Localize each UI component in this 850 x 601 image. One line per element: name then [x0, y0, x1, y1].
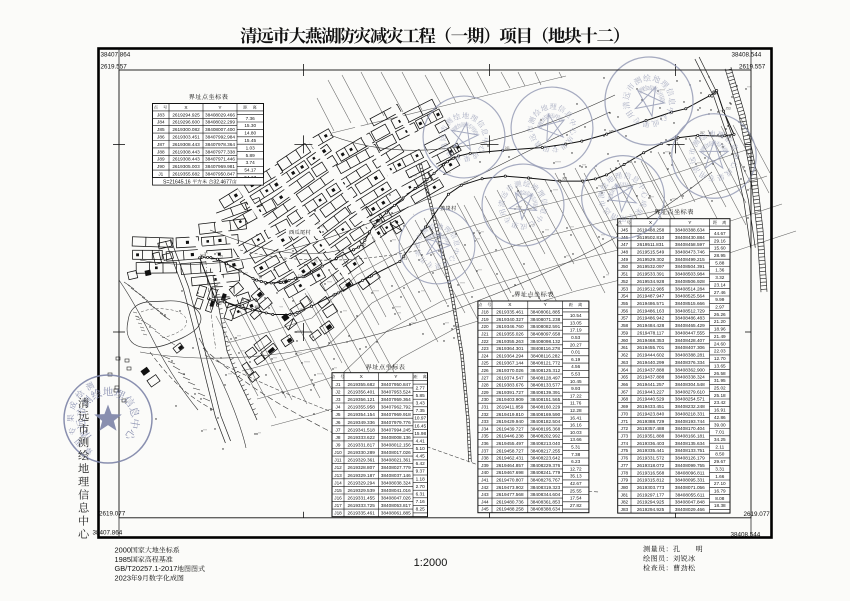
- svg-text:38408038.324: 38408038.324: [381, 480, 411, 485]
- svg-text:38408458.597: 38408458.597: [675, 242, 705, 247]
- svg-text:J78: J78: [621, 470, 629, 475]
- svg-text:1.18: 1.18: [416, 476, 426, 481]
- svg-text:54.17: 54.17: [244, 168, 256, 173]
- svg-text:9: 9: [138, 574, 142, 583]
- svg-text:J31: J31: [481, 405, 489, 410]
- svg-text:38408232.248: 38408232.248: [675, 404, 705, 409]
- svg-text:16.45: 16.45: [414, 423, 426, 428]
- svg-text:38408512.729: 38408512.729: [675, 308, 705, 313]
- svg-text:8.25: 8.25: [416, 507, 426, 512]
- svg-text:J60: J60: [621, 338, 629, 343]
- svg-text:2619303.451: 2619303.451: [172, 135, 200, 140]
- svg-text:24.60: 24.60: [714, 341, 726, 346]
- svg-text:27.82: 27.82: [570, 503, 582, 508]
- svg-text:2619316.568: 2619316.568: [637, 470, 665, 475]
- svg-text:2619467.698: 2619467.698: [496, 470, 524, 475]
- svg-text:J21: J21: [481, 332, 489, 337]
- svg-text:2619529.302: 2619529.302: [637, 257, 665, 262]
- svg-text:2619294.925: 2619294.925: [637, 507, 665, 512]
- svg-text:J17: J17: [334, 503, 342, 508]
- svg-text:J52: J52: [621, 279, 629, 284]
- svg-text:J87: J87: [157, 142, 165, 147]
- svg-text:38408182.504: 38408182.504: [530, 419, 560, 424]
- svg-text:38408515.666: 38408515.666: [675, 301, 705, 306]
- svg-text:J40: J40: [481, 470, 489, 475]
- svg-text:14.80: 14.80: [244, 131, 256, 136]
- svg-text:7.35: 7.35: [416, 408, 426, 413]
- svg-text:J25: J25: [481, 361, 489, 366]
- svg-text:J68: J68: [621, 397, 629, 402]
- svg-text:2619336.403: 2619336.403: [637, 441, 665, 446]
- svg-text:2619486.163: 2619486.163: [637, 308, 665, 313]
- svg-text:10.54: 10.54: [570, 313, 582, 318]
- svg-text:J80: J80: [621, 485, 629, 490]
- svg-text:J27: J27: [481, 375, 489, 380]
- svg-text:38408276.767: 38408276.767: [530, 478, 560, 483]
- svg-text:J23: J23: [481, 346, 489, 351]
- svg-text:31.95: 31.95: [714, 378, 726, 383]
- svg-text:J38: J38: [481, 456, 489, 461]
- svg-text:38407953.524: 38407953.524: [381, 389, 411, 394]
- svg-text:38408319.323: 38408319.323: [530, 485, 560, 490]
- svg-text:38408388.634: 38408388.634: [530, 507, 560, 512]
- svg-text:J67: J67: [621, 389, 629, 394]
- svg-text:2619478.117: 2619478.117: [637, 331, 664, 336]
- svg-text:2619315.812: 2619315.812: [637, 478, 665, 483]
- svg-text:2619470.807: 2619470.807: [496, 478, 524, 483]
- svg-text:J44: J44: [481, 499, 489, 504]
- svg-text:J9: J9: [336, 443, 341, 448]
- svg-text:25.02: 25.02: [714, 386, 726, 391]
- svg-text:39.00: 39.00: [714, 422, 726, 427]
- svg-text:J12: J12: [334, 465, 342, 470]
- svg-text:38407979.776: 38407979.776: [381, 420, 411, 425]
- svg-text:J29: J29: [481, 390, 489, 395]
- svg-text:J41: J41: [481, 478, 489, 483]
- svg-text:16.41: 16.41: [570, 415, 582, 420]
- svg-text:38408428.407: 38408428.407: [675, 338, 705, 343]
- svg-text:4.56: 4.56: [571, 364, 581, 369]
- svg-text:J1: J1: [158, 172, 163, 177]
- svg-text:2619437.888: 2619437.888: [637, 367, 665, 372]
- svg-text:2619364.301: 2619364.301: [496, 346, 524, 351]
- svg-text:J65: J65: [621, 375, 629, 380]
- svg-text:38407994.245: 38407994.245: [381, 427, 411, 432]
- svg-text:J72: J72: [621, 426, 629, 431]
- svg-text:8.08: 8.08: [715, 496, 725, 501]
- svg-text:38408361.853: 38408361.853: [530, 499, 560, 504]
- svg-text:J10: J10: [334, 450, 342, 455]
- svg-text:J25: J25: [361, 243, 366, 247]
- svg-text:J6: J6: [336, 420, 341, 425]
- svg-text:38408218.331: 38408218.331: [675, 411, 705, 416]
- svg-text:5.31: 5.31: [571, 445, 581, 450]
- svg-text:38408195.368: 38408195.368: [530, 426, 560, 431]
- svg-text:S=21645.16: S=21645.16: [163, 179, 191, 185]
- svg-text:38408061.885: 38408061.885: [530, 310, 560, 315]
- svg-text:2619354.154: 2619354.154: [348, 412, 376, 417]
- svg-text:2619488.258: 2619488.258: [496, 507, 524, 512]
- svg-text:J49: J49: [621, 257, 629, 262]
- svg-text:J35: J35: [481, 434, 489, 439]
- svg-text:2619335.461: 2619335.461: [496, 310, 524, 315]
- svg-text:42.67: 42.67: [570, 481, 582, 486]
- svg-text:2619443.227: 2619443.227: [637, 389, 665, 394]
- svg-text:6.31: 6.31: [416, 492, 426, 497]
- svg-text:2619403.909: 2619403.909: [496, 397, 524, 402]
- svg-text:J39: J39: [481, 463, 489, 468]
- svg-text:2619484.428: 2619484.428: [637, 323, 665, 328]
- svg-text:J62: J62: [621, 353, 629, 358]
- svg-text:9.37: 9.37: [416, 469, 426, 474]
- svg-text:J36: J36: [481, 441, 489, 446]
- svg-text:2619391.727: 2619391.727: [496, 390, 524, 395]
- svg-text:4.41: 4.41: [416, 438, 426, 443]
- svg-text:15.30: 15.30: [244, 123, 256, 128]
- svg-text:J83: J83: [621, 507, 629, 512]
- svg-text:6.23: 6.23: [571, 459, 581, 464]
- svg-text:2619370.026: 2619370.026: [496, 368, 524, 373]
- svg-text:3.74: 3.74: [246, 160, 256, 165]
- svg-text:2619355.682: 2619355.682: [172, 172, 200, 177]
- svg-text:J29: J29: [377, 220, 382, 224]
- svg-text:38408430.884: 38408430.884: [675, 235, 705, 240]
- svg-text:1.66: 1.66: [715, 474, 725, 479]
- svg-text:J15: J15: [334, 488, 342, 493]
- svg-text:38408037.146: 38408037.146: [381, 473, 411, 478]
- svg-text:2619341.518: 2619341.518: [348, 427, 376, 432]
- svg-text:38408135.634: 38408135.634: [675, 441, 705, 446]
- svg-text:2619303.773: 2619303.773: [637, 485, 665, 490]
- svg-text:J8: J8: [336, 435, 341, 440]
- svg-text:9.93: 9.93: [571, 386, 581, 391]
- svg-text:38408097.658: 38408097.658: [530, 332, 560, 337]
- svg-text:J73: J73: [402, 257, 407, 261]
- svg-text:2.70: 2.70: [416, 484, 426, 489]
- svg-text:38408.544: 38408.544: [732, 52, 762, 59]
- svg-text:11.76: 11.76: [570, 401, 582, 406]
- svg-text:10.45: 10.45: [570, 379, 582, 384]
- svg-text:2619349.336: 2619349.336: [348, 420, 376, 425]
- svg-text:J28: J28: [481, 383, 489, 388]
- svg-text:38407.864: 38407.864: [93, 530, 123, 537]
- svg-text:2619355.958: 2619355.958: [348, 405, 376, 410]
- svg-text:2619423.840: 2619423.840: [637, 411, 665, 416]
- svg-text:38408022.299: 38408022.299: [205, 120, 235, 125]
- svg-text:38408465.429: 38408465.429: [675, 323, 705, 328]
- svg-text:25.55: 25.55: [570, 488, 582, 493]
- svg-text:2619437.888: 2619437.888: [637, 375, 665, 380]
- svg-text:GB/T20257.1-2017: GB/T20257.1-2017: [115, 564, 178, 573]
- svg-text:13.66: 13.66: [570, 437, 582, 442]
- svg-text:0.01: 0.01: [571, 350, 581, 355]
- svg-text:12.72: 12.72: [570, 466, 582, 471]
- svg-text:38408047.026: 38408047.026: [381, 496, 411, 501]
- svg-text:J37: J37: [481, 448, 489, 453]
- svg-text:38408388.634: 38408388.634: [675, 227, 705, 232]
- svg-text:1:2000: 1:2000: [414, 557, 448, 569]
- svg-text:34.25: 34.25: [714, 437, 726, 442]
- svg-text:2619364.294: 2619364.294: [496, 353, 524, 358]
- svg-text:38408029.466: 38408029.466: [205, 112, 235, 117]
- svg-text:J16: J16: [334, 496, 342, 501]
- svg-text:15.60: 15.60: [714, 246, 726, 251]
- svg-text:2619455.701: 2619455.701: [637, 345, 665, 350]
- svg-text:2619308.443: 2619308.443: [172, 157, 200, 162]
- svg-text:38408061.885: 38408061.885: [381, 511, 411, 516]
- svg-text:18.96: 18.96: [714, 327, 726, 332]
- svg-text:38407969.981: 38407969.981: [205, 164, 235, 169]
- svg-text:J79: J79: [621, 478, 629, 483]
- svg-text:2619388.729: 2619388.729: [637, 419, 665, 424]
- svg-text:6.19: 6.19: [571, 357, 581, 362]
- svg-text:38408338.324: 38408338.324: [675, 375, 705, 380]
- svg-text:J77: J77: [340, 288, 345, 292]
- svg-text:2619357.488: 2619357.488: [637, 426, 665, 431]
- svg-text:2619355.026: 2619355.026: [496, 332, 524, 337]
- svg-text:2619308.443: 2619308.443: [172, 142, 200, 147]
- svg-text:J69: J69: [463, 181, 468, 185]
- svg-text:38407992.984: 38407992.984: [205, 135, 235, 140]
- svg-text:J42: J42: [481, 485, 489, 490]
- svg-text:J84: J84: [157, 120, 165, 125]
- svg-text:J13: J13: [334, 473, 342, 478]
- svg-text:38408506.928: 38408506.928: [675, 279, 705, 284]
- svg-text:2619480.736: 2619480.736: [496, 499, 524, 504]
- svg-text:J21: J21: [338, 254, 343, 258]
- svg-text:J3: J3: [336, 397, 341, 402]
- svg-text:J1: J1: [202, 253, 206, 257]
- svg-text:J70: J70: [621, 411, 629, 416]
- svg-text:38408055.611: 38408055.611: [675, 492, 705, 497]
- svg-text:2000: 2000: [115, 546, 131, 555]
- svg-text:4.45: 4.45: [416, 454, 426, 459]
- svg-text:18.38: 18.38: [714, 503, 726, 508]
- svg-text:2619473.902: 2619473.902: [496, 485, 524, 490]
- svg-text:38408217.255: 38408217.255: [530, 448, 560, 453]
- svg-text:2619511.831: 2619511.831: [637, 242, 664, 247]
- svg-text:2619446.238: 2619446.238: [496, 434, 524, 439]
- svg-text:J34: J34: [481, 426, 489, 431]
- svg-text:38408096.811: 38408096.811: [675, 470, 705, 475]
- svg-text:38408166.181: 38408166.181: [675, 434, 705, 439]
- svg-text:2619512.985: 2619512.985: [637, 286, 665, 291]
- svg-text:26.58: 26.58: [714, 371, 726, 376]
- svg-text:J54: J54: [621, 294, 629, 299]
- svg-text:J69: J69: [621, 404, 629, 409]
- svg-text:2619356.121: 2619356.121: [348, 397, 376, 402]
- svg-text:38408223.642: 38408223.642: [530, 456, 560, 461]
- svg-text:J46: J46: [621, 235, 629, 240]
- svg-text:2619305.003: 2619305.003: [172, 164, 200, 169]
- svg-text:J77: J77: [621, 463, 629, 468]
- svg-text:38407.864: 38407.864: [101, 52, 131, 59]
- svg-text:J85: J85: [157, 127, 165, 132]
- svg-text:J59: J59: [621, 331, 629, 336]
- svg-text:38408126.179: 38408126.179: [675, 456, 705, 461]
- svg-text:2619.557: 2619.557: [101, 64, 128, 71]
- svg-text:22.03: 22.03: [714, 349, 726, 354]
- svg-text:12.70: 12.70: [714, 356, 726, 361]
- svg-text:16.16: 16.16: [570, 423, 582, 428]
- svg-text:2619355.263: 2619355.263: [496, 339, 524, 344]
- svg-text:38408047.848: 38408047.848: [675, 500, 705, 505]
- svg-text:2619383.676: 2619383.676: [496, 383, 524, 388]
- svg-text:28.95: 28.95: [714, 253, 726, 258]
- svg-text:16.79: 16.79: [714, 489, 726, 494]
- svg-text:2619486.942: 2619486.942: [637, 316, 665, 321]
- svg-text:12.28: 12.28: [570, 408, 582, 413]
- svg-text:5.53: 5.53: [571, 372, 581, 377]
- svg-text:J45: J45: [481, 507, 489, 512]
- svg-text:13.65: 13.65: [714, 363, 726, 368]
- svg-text:J53: J53: [621, 286, 629, 291]
- svg-text:J32: J32: [481, 412, 489, 417]
- svg-text:J74: J74: [621, 441, 629, 446]
- svg-text:J37: J37: [449, 157, 454, 161]
- svg-text:38408041.016: 38408041.016: [381, 488, 411, 493]
- svg-text:38408486.483: 38408486.483: [675, 316, 705, 321]
- svg-text:J13: J13: [282, 278, 287, 282]
- svg-text:38408499.215: 38408499.215: [675, 257, 705, 262]
- svg-text:J9: J9: [259, 276, 263, 280]
- svg-text:J2: J2: [336, 389, 341, 394]
- svg-text:2619433.451: 2619433.451: [637, 404, 665, 409]
- svg-text:38408279.610: 38408279.610: [675, 389, 705, 394]
- svg-text:38408012.156: 38408012.156: [381, 443, 411, 448]
- svg-text:38408160.229: 38408160.229: [530, 405, 560, 410]
- svg-text:38408095.331: 38408095.331: [675, 478, 705, 483]
- svg-text:2619329.294: 2619329.294: [348, 480, 376, 485]
- svg-text:2619429.940: 2619429.940: [496, 419, 524, 424]
- svg-text:J43: J43: [481, 492, 489, 497]
- svg-text:2619346.760: 2619346.760: [496, 324, 524, 329]
- svg-text:J41: J41: [505, 146, 510, 150]
- svg-text:2619419.810: 2619419.810: [496, 412, 524, 417]
- svg-text:J5: J5: [336, 412, 341, 417]
- svg-text:2619297.177: 2619297.177: [637, 492, 665, 497]
- svg-text:2619330.289: 2619330.289: [348, 450, 376, 455]
- svg-text:38408304.548: 38408304.548: [675, 382, 705, 387]
- svg-text:2619486.571: 2619486.571: [637, 301, 665, 306]
- svg-text:2619318.072: 2619318.072: [637, 463, 665, 468]
- svg-text:J89: J89: [157, 157, 165, 162]
- svg-text:5.10: 5.10: [416, 446, 426, 451]
- svg-text:J61: J61: [626, 160, 631, 164]
- svg-text:J48: J48: [621, 250, 629, 255]
- svg-text:38408098.132: 38408098.132: [530, 339, 560, 344]
- svg-text:38408139.391: 38408139.391: [530, 390, 560, 395]
- svg-text:2619294.925: 2619294.925: [172, 112, 200, 117]
- svg-text:5.88: 5.88: [715, 260, 725, 265]
- svg-text:6.42: 6.42: [416, 461, 426, 466]
- svg-text:J51: J51: [621, 272, 629, 277]
- svg-text:J22: J22: [481, 339, 489, 344]
- svg-text:2619.557: 2619.557: [739, 64, 766, 71]
- svg-text:2619.077: 2619.077: [99, 511, 126, 518]
- svg-text:2.97: 2.97: [715, 305, 725, 310]
- svg-text:J45: J45: [621, 227, 629, 232]
- svg-text:J73: J73: [621, 434, 629, 439]
- svg-text:38408344.604: 38408344.604: [530, 492, 560, 497]
- svg-text:2619329.539: 2619329.539: [348, 488, 376, 493]
- svg-text:23.42: 23.42: [714, 400, 726, 405]
- svg-text:23.14: 23.14: [714, 282, 726, 287]
- svg-text:2619464.857: 2619464.857: [496, 463, 524, 468]
- svg-text:38408504.391: 38408504.391: [675, 264, 705, 269]
- svg-text:J65: J65: [562, 177, 567, 181]
- svg-text:J88: J88: [157, 149, 165, 154]
- svg-text:2619532.097: 2619532.097: [637, 264, 665, 269]
- svg-text:2619335.461: 2619335.461: [348, 511, 376, 516]
- svg-text:2619331.455: 2619331.455: [348, 496, 376, 501]
- svg-text:J30: J30: [481, 397, 489, 402]
- svg-text:J50: J50: [621, 264, 629, 269]
- svg-text:2619294.925: 2619294.925: [637, 500, 665, 505]
- svg-text:J86: J86: [157, 135, 165, 140]
- svg-text:17.22: 17.22: [570, 393, 582, 398]
- svg-text:29.16: 29.16: [714, 238, 726, 243]
- svg-text:2619374.547: 2619374.547: [496, 375, 524, 380]
- svg-text:38408017.026: 38408017.026: [381, 450, 411, 455]
- svg-text:2619335.441: 2619335.441: [637, 448, 665, 453]
- svg-text:2619300.082: 2619300.082: [172, 127, 200, 132]
- svg-text:J81: J81: [621, 492, 629, 497]
- svg-text:3.31: 3.31: [715, 466, 725, 471]
- svg-text:15.98: 15.98: [414, 431, 426, 436]
- svg-text:J18: J18: [481, 310, 489, 315]
- svg-text:2619340.327: 2619340.327: [496, 317, 524, 322]
- svg-text:2619329.361: 2619329.361: [348, 458, 376, 463]
- svg-text:2619331.817: 2619331.817: [348, 443, 376, 448]
- svg-text:2619515.549: 2619515.549: [637, 250, 665, 255]
- svg-text:J45: J45: [609, 130, 614, 134]
- svg-text:38408388.281: 38408388.281: [675, 353, 705, 358]
- svg-text:38407959.364: 38407959.364: [381, 397, 411, 402]
- svg-text:2619351.888: 2619351.888: [637, 434, 665, 439]
- svg-text:2619331.572: 2619331.572: [637, 456, 665, 461]
- svg-text:J81: J81: [299, 308, 304, 312]
- svg-text:38408447.555: 38408447.555: [675, 331, 705, 336]
- svg-text:5.85: 5.85: [416, 393, 426, 398]
- svg-text:2023: 2023: [115, 574, 131, 583]
- svg-text:38408254.571: 38408254.571: [675, 397, 705, 402]
- svg-text:2619468.353: 2619468.353: [637, 338, 665, 343]
- svg-text:J4: J4: [336, 405, 341, 410]
- svg-text:2619296.600: 2619296.600: [172, 120, 200, 125]
- svg-text:J20: J20: [481, 324, 489, 329]
- svg-text:17.54: 17.54: [570, 496, 582, 501]
- svg-text:13.05: 13.05: [570, 320, 582, 325]
- svg-text:38408525.564: 38408525.564: [675, 294, 705, 299]
- svg-text:38408473.746: 38408473.746: [675, 250, 705, 255]
- svg-text:2619487.947: 2619487.947: [637, 294, 665, 299]
- svg-text:J56: J56: [621, 308, 629, 313]
- svg-text:J58: J58: [621, 323, 629, 328]
- svg-text:2619462.431: 2619462.431: [496, 456, 524, 461]
- svg-text:38407969.918: 38407969.918: [381, 412, 411, 417]
- svg-text:38408008.136: 38408008.136: [381, 435, 411, 440]
- svg-text:2619356.401: 2619356.401: [348, 389, 376, 394]
- svg-text:15.45: 15.45: [244, 138, 256, 143]
- svg-text:J85: J85: [254, 305, 259, 309]
- svg-text:38408241.779: 38408241.779: [530, 470, 560, 475]
- svg-text:J83: J83: [157, 112, 165, 117]
- svg-text:J82: J82: [621, 500, 629, 505]
- svg-text:38408071.056: 38408071.056: [675, 485, 705, 490]
- svg-text:J14: J14: [334, 480, 342, 485]
- svg-text:21.49: 21.49: [714, 334, 726, 339]
